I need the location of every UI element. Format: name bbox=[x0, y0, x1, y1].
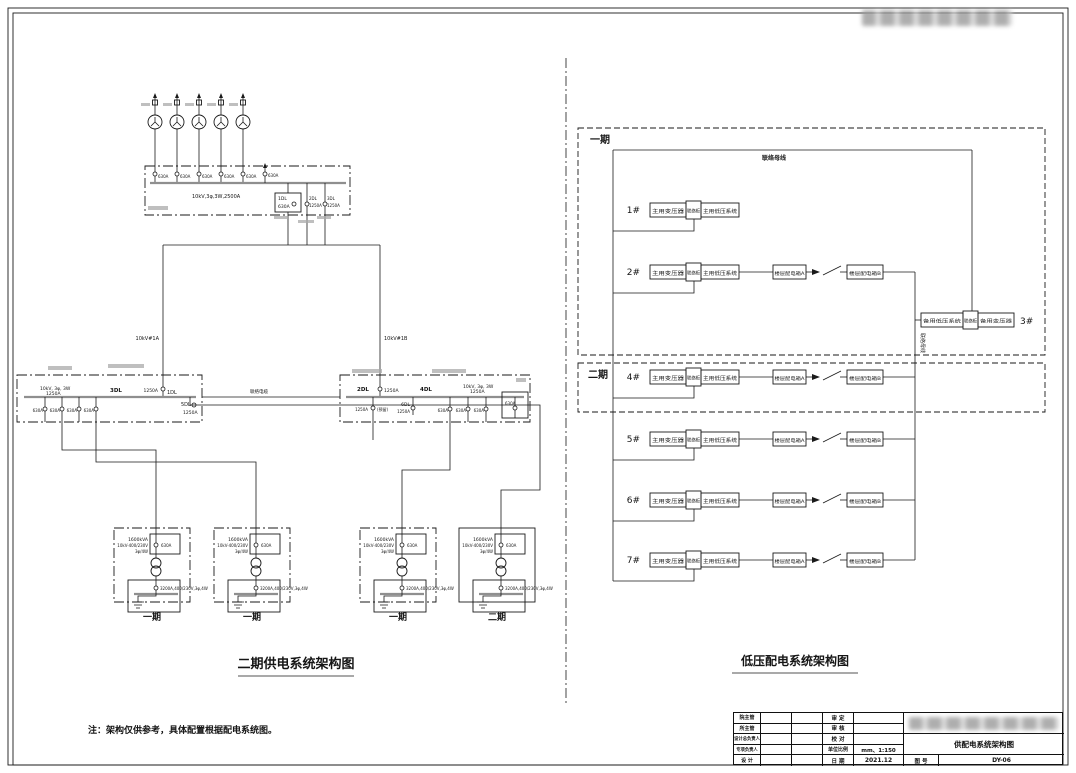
main-lv-system-box: 主用低压系统 bbox=[703, 498, 737, 505]
signature-cell bbox=[792, 734, 823, 745]
value-cell bbox=[854, 724, 904, 735]
floor-panel-a-box: 楼层配电箱A bbox=[775, 558, 806, 565]
drawing-sheet: 630A 630A 630A 630A 630A 630A 10kV,3φ,3W… bbox=[0, 0, 1076, 773]
illegible-micro-label bbox=[148, 206, 168, 210]
signature-cell bbox=[792, 724, 823, 735]
transformer-unit: 630A 1600kVA 10kV-400/230V 3φ/4W 3200A,4… bbox=[360, 528, 454, 623]
floor-panel-a-box: 楼层配电箱A bbox=[775, 270, 806, 277]
illegible-micro-label bbox=[516, 378, 526, 382]
titleblock-check-label: 审 定 bbox=[823, 713, 854, 724]
tie-cabinet-box: 联络柜 bbox=[687, 498, 700, 505]
incoming-cables: 10kV#1A 1250A 10kV#1B 1250A bbox=[136, 245, 409, 397]
outer-border bbox=[8, 8, 1068, 765]
breaker-rating: 630A bbox=[180, 174, 191, 179]
inner-border bbox=[13, 13, 1063, 765]
generator-symbol bbox=[185, 93, 206, 183]
tie-cabinet-box: 联络柜 bbox=[687, 558, 700, 565]
main-lv-system-box: 主用低压系统 bbox=[703, 437, 737, 444]
tx-connection: 3φ/4W bbox=[135, 549, 148, 554]
reserved-rating: 1250A bbox=[355, 407, 368, 412]
lv-bus-label: 3200A,400/230V,3φ,4W bbox=[160, 586, 208, 591]
arrow-icon bbox=[812, 436, 820, 442]
outgoing-rating: 630A bbox=[84, 408, 95, 413]
row-id: 3# bbox=[1020, 317, 1033, 327]
right-diagram-title: 低压配电系统架构图 bbox=[740, 653, 849, 668]
arrow-icon bbox=[812, 269, 820, 275]
signature-cell bbox=[761, 724, 792, 735]
outgoing-rating: 630A bbox=[67, 408, 78, 413]
titleblock-check-label: 审 核 bbox=[823, 724, 854, 735]
lv-bus-label: 3200A,400/230V,3φ,4W bbox=[505, 586, 553, 591]
tx-ratio: 10kV-400/230V bbox=[117, 543, 148, 548]
backup-transformer-box: 备用变压器 bbox=[980, 318, 1013, 325]
main-lv-system-box: 主用低压系统 bbox=[703, 208, 737, 215]
main-transformer-box: 主用变压器 bbox=[652, 375, 684, 382]
tx-ratio: 10kV-400/230V bbox=[217, 543, 248, 548]
title-block: 院主管 所主管 设计总负责人 专项负责人 设 计 审 定 审 核 校 对 单位比… bbox=[733, 712, 1063, 765]
company-name-cell bbox=[904, 713, 1064, 734]
phase2-label: 二期 bbox=[588, 368, 608, 381]
floor-panel-b-box: 楼层配电箱B bbox=[849, 498, 881, 505]
tx-connection: 3φ/4W bbox=[381, 549, 394, 554]
main-transformer-box: 主用变压器 bbox=[652, 437, 684, 444]
illegible-micro-label bbox=[229, 103, 238, 106]
generator-symbol bbox=[163, 93, 184, 183]
generator-symbol bbox=[141, 93, 162, 183]
illegible-micro-label bbox=[274, 216, 288, 219]
redacted-company-name bbox=[909, 717, 1059, 730]
titleblock-role-label: 所主管 bbox=[734, 724, 761, 735]
outgoing-rating: 630A bbox=[50, 408, 61, 413]
tie-cabinet-box: 联络柜 bbox=[687, 437, 700, 444]
row-id: 1# bbox=[627, 206, 640, 216]
titleblock-role-label: 专项负责人 bbox=[734, 745, 761, 756]
illegible-micro-label bbox=[48, 366, 72, 370]
substation-row: 2# 主用变压器 联络柜 主用低压系统 楼层配电箱A 楼层配电箱B bbox=[613, 263, 915, 293]
signature-cell bbox=[792, 755, 823, 766]
outgoing-rating: 630A bbox=[474, 408, 485, 413]
substation-row: 1# 主用变压器 联络柜 主用低压系统 bbox=[613, 201, 739, 231]
phase-label: 二期 bbox=[488, 611, 506, 623]
signature-cell bbox=[761, 745, 792, 756]
top-tie-bus-label: 联络母线 bbox=[762, 154, 786, 162]
backup-row: 备用低压系统 联络柜 备用变压器 3# bbox=[915, 311, 1033, 329]
main-transformer-box: 主用变压器 bbox=[652, 558, 684, 565]
date-value: 2021.12 bbox=[854, 755, 904, 766]
breaker-rating: 630A bbox=[224, 174, 235, 179]
hv-bus-label: 10kV,3φ,3W,2500A bbox=[192, 194, 241, 200]
breaker-designator: 3DL bbox=[110, 388, 122, 394]
lv-distribution-diagram: 一期 二期 联络母线 联络母线 1# 主用变压器 联络柜 主用低压系统 2# 主… bbox=[578, 128, 1045, 673]
row-id: 6# bbox=[627, 496, 640, 506]
substation-row: 4# 主用变压器 联络柜 主用低压系统 楼层配电箱A 楼层配电箱B bbox=[613, 368, 915, 398]
arrow-icon bbox=[812, 557, 820, 563]
tx-breaker: 630A bbox=[506, 543, 517, 548]
incomer-name: 10kV#1B bbox=[384, 336, 408, 342]
feeder-rating: 1250A bbox=[309, 203, 322, 208]
lv-bus-label: 3200A,400/230V,3φ,4W bbox=[260, 586, 308, 591]
substation-row: 7# 主用变压器 联络柜 主用低压系统 楼层配电箱A 楼层配电箱B bbox=[613, 551, 915, 581]
breaker-designator: 5DL bbox=[181, 402, 191, 408]
illegible-micro-label bbox=[163, 103, 172, 106]
redacted-watermark bbox=[862, 10, 1012, 26]
value-cell bbox=[854, 713, 904, 724]
phase-label: 一期 bbox=[143, 611, 161, 623]
tie-cabinet-box: 联络柜 bbox=[687, 375, 700, 382]
feeder-designator: 3DL bbox=[327, 196, 336, 201]
main-lv-system-box: 主用低压系统 bbox=[703, 558, 737, 565]
tx-connection: 3φ/4W bbox=[480, 549, 493, 554]
reserved-label: (预留) bbox=[377, 406, 389, 412]
transformer-unit: 630A 1600kVA 10kV-400/230V 3φ/4W 3200A,4… bbox=[114, 528, 208, 623]
floor-panel-a-box: 楼层配电箱A bbox=[775, 498, 806, 505]
tx-ratio: 10kV-400/230V bbox=[363, 543, 394, 548]
incomer-rating: 1250A bbox=[143, 388, 158, 394]
main-transformer-box: 主用变压器 bbox=[652, 208, 684, 215]
breaker-rating: 630A bbox=[246, 174, 257, 179]
floor-panel-b-box: 楼层配电箱B bbox=[849, 558, 881, 565]
cad-canvas: 630A 630A 630A 630A 630A 630A 10kV,3φ,3W… bbox=[0, 0, 1076, 773]
substation-row: 6# 主用变压器 联络柜 主用低压系统 楼层配电箱A 楼层配电箱B bbox=[613, 491, 915, 521]
breaker-designator: 4DL bbox=[420, 387, 432, 393]
feeder-designator: 1DL bbox=[278, 196, 287, 202]
main-lv-system-box: 主用低压系统 bbox=[703, 270, 737, 277]
titleblock-check-label: 校 对 bbox=[823, 734, 854, 745]
floor-panel-a-box: 楼层配电箱A bbox=[775, 437, 806, 444]
tie-cabinet-box: 联络柜 bbox=[964, 318, 977, 325]
spare-breaker-rating: 630A bbox=[268, 173, 279, 178]
signature-cell bbox=[761, 713, 792, 724]
illegible-micro-label bbox=[108, 364, 144, 368]
mv-section-b: 2DL 1250A (预留) 4DL 6DL 1250A 10kV, 3φ, 3… bbox=[340, 369, 530, 440]
row-id: 7# bbox=[627, 556, 640, 566]
illegible-micro-label bbox=[141, 103, 150, 106]
feeder-designator: 2DL bbox=[309, 196, 318, 201]
main-transformer-box: 主用变压器 bbox=[652, 498, 684, 505]
outgoing-rating: 630A bbox=[456, 408, 467, 413]
drawing-title: 供配电系统架构图 bbox=[904, 734, 1064, 755]
scale-value: mm、1:150 bbox=[854, 745, 904, 756]
arrow-icon bbox=[812, 374, 820, 380]
drawing-no-value: DY-06 bbox=[939, 755, 1064, 766]
tx-breaker: 630A bbox=[261, 543, 272, 548]
main-transformer-box: 主用变压器 bbox=[652, 270, 684, 277]
drawing-note: 注：架构仅供参考，具体配置根据配电系统图。 bbox=[88, 724, 277, 736]
generator-group: 630A 630A 630A 630A 630A bbox=[141, 93, 257, 183]
incomer-rating: 1250A bbox=[384, 388, 399, 394]
breaker-rating: 1250A bbox=[397, 409, 410, 414]
tie-cabinet-box: 联络柜 bbox=[687, 208, 700, 215]
titleblock-role-label: 设计总负责人 bbox=[734, 734, 761, 745]
illegible-micro-label bbox=[185, 103, 194, 106]
outgoing-rating: 630A bbox=[33, 408, 44, 413]
illegible-micro-label bbox=[432, 369, 466, 373]
transformer-unit: 630A 1600kVA 10kV-400/230V 3φ/4W 3200A,4… bbox=[214, 528, 308, 623]
tx-connection: 3φ/4W bbox=[235, 549, 248, 554]
breaker-rating: 630A bbox=[202, 174, 213, 179]
arrow-icon bbox=[812, 497, 820, 503]
row-id: 5# bbox=[627, 435, 640, 445]
feeder-rating: 1250A bbox=[327, 203, 340, 208]
signature-cell bbox=[761, 755, 792, 766]
lv-bus-label: 3200A,400/230V,3φ,4W bbox=[406, 586, 454, 591]
signature-cell bbox=[792, 713, 823, 724]
mv-section-a: 10kV, 3φ, 3W 1250A 3DL 1DL 5DL 1250A 630… bbox=[17, 364, 202, 422]
substation-row: 5# 主用变压器 联络柜 主用低压系统 楼层配电箱A 楼层配电箱B bbox=[613, 430, 915, 460]
tie-cable-label: 联络电缆 bbox=[250, 388, 268, 395]
breaker-rating: 630A bbox=[158, 174, 169, 179]
phase-label: 一期 bbox=[389, 611, 407, 623]
phase2-boundary-box bbox=[578, 363, 1045, 412]
feeder-rating: 630A bbox=[278, 204, 291, 210]
generator-symbol bbox=[229, 93, 250, 183]
floor-panel-b-box: 楼层配电箱B bbox=[849, 437, 881, 444]
outgoing-rating: 630A bbox=[438, 408, 449, 413]
phase-label: 一期 bbox=[243, 611, 261, 623]
tx-breaker: 630A bbox=[407, 543, 418, 548]
breaker-designator: 1DL bbox=[167, 390, 177, 396]
floor-panel-b-box: 楼层配电箱B bbox=[849, 375, 881, 382]
illegible-micro-label bbox=[298, 220, 314, 223]
breaker-rating: 1250A bbox=[183, 410, 198, 416]
left-diagram-title: 二期供电系统架构图 bbox=[237, 656, 354, 672]
generator-symbol bbox=[207, 93, 228, 183]
titleblock-role-label: 院主管 bbox=[734, 713, 761, 724]
titleblock-role-label: 设 计 bbox=[734, 755, 761, 766]
signature-cell bbox=[761, 734, 792, 745]
floor-panel-a-box: 楼层配电箱A bbox=[775, 375, 806, 382]
illegible-micro-label bbox=[317, 216, 331, 219]
breaker-designator: 2DL bbox=[357, 387, 369, 393]
value-cell bbox=[854, 734, 904, 745]
drawing-no-label: 图 号 bbox=[904, 755, 939, 766]
illegible-micro-label bbox=[352, 369, 382, 373]
section-bus-rating: 1250A bbox=[46, 391, 61, 397]
date-label: 日 期 bbox=[823, 755, 854, 766]
transformer-unit: 630A 1600kVA 10kV-400/230V 3φ/4W 3200A,4… bbox=[459, 528, 553, 623]
row-id: 2# bbox=[627, 268, 640, 278]
incomer-name: 10kV#1A bbox=[136, 336, 160, 342]
row-id: 4# bbox=[627, 373, 640, 383]
phase2-supply-diagram: 630A 630A 630A 630A 630A 630A 10kV,3φ,3W… bbox=[17, 93, 553, 736]
tie-bus-vertical-label: 联络母线 bbox=[919, 333, 926, 353]
tie-cabinet-box: 联络柜 bbox=[687, 270, 700, 277]
phase1-label: 一期 bbox=[590, 133, 610, 146]
tx-ratio: 10kV-400/230V bbox=[462, 543, 493, 548]
tx-breaker: 630A bbox=[161, 543, 172, 548]
scale-label: 单位比例 bbox=[823, 745, 854, 756]
illegible-micro-label bbox=[207, 103, 216, 106]
signature-cell bbox=[792, 745, 823, 756]
floor-panel-b-box: 楼层配电箱B bbox=[849, 270, 881, 277]
main-lv-system-box: 主用低压系统 bbox=[703, 375, 737, 382]
backup-lv-system-box: 备用低压系统 bbox=[923, 318, 962, 325]
section-bus-rating: 1250A bbox=[470, 389, 485, 395]
